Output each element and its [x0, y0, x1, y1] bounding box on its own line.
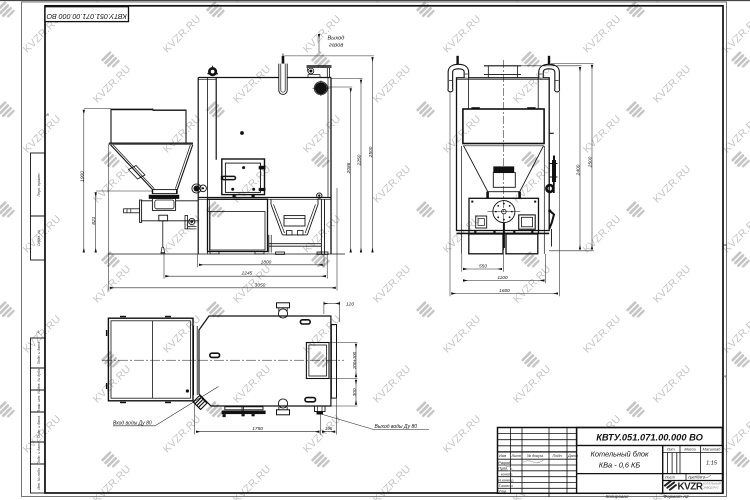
svg-text:КВа - 0,6 КБ: КВа - 0,6 КБ — [599, 461, 641, 470]
svg-text:1600: 1600 — [499, 288, 510, 294]
svg-text:Инв. № дубл.: Инв. № дубл. — [37, 368, 41, 390]
svg-text:KVZR: KVZR — [678, 481, 703, 492]
svg-text:КВТУ.051.071.00.000 ВО: КВТУ.051.071.00.000 ВО — [596, 433, 703, 443]
svg-text:ЗАВОД РУС: ЗАВОД РУС — [703, 486, 720, 490]
svg-text:контр.: контр. — [501, 473, 513, 477]
svg-text:821: 821 — [91, 216, 97, 224]
svg-text:Листов 1: Листов 1 — [687, 476, 705, 480]
svg-text:Выход воды Ду 80: Выход воды Ду 80 — [375, 424, 418, 430]
svg-text:газов: газов — [329, 43, 343, 49]
svg-text:195: 195 — [325, 426, 333, 431]
svg-text:Т.контр.: Т.контр. — [498, 484, 513, 488]
svg-text:Перв. примен.: Перв. примен. — [37, 173, 41, 197]
svg-text:А: А — [722, 374, 726, 379]
svg-text:Разраб.: Разраб. — [498, 461, 512, 465]
svg-text:1750: 1750 — [252, 426, 263, 432]
svg-text:Лист: Лист — [511, 454, 522, 458]
svg-text:2086: 2086 — [346, 162, 352, 174]
svg-text:Инв. № подл.: Инв. № подл. — [37, 467, 41, 489]
svg-text:120: 120 — [346, 301, 354, 307]
svg-text:2245: 2245 — [241, 271, 253, 277]
svg-text:Подп. и дата: Подп. и дата — [37, 342, 41, 365]
svg-text:2250: 2250 — [357, 154, 363, 166]
svg-text:Вход воды Ду 80: Вход воды Ду 80 — [113, 420, 152, 426]
svg-text:А: А — [35, 330, 39, 335]
svg-text:Подп. и дата: Подп. и дата — [37, 442, 41, 465]
svg-text:Утв.: Утв. — [498, 490, 507, 494]
svg-text:2500: 2500 — [588, 156, 594, 168]
svg-text:200±100: 200±100 — [352, 351, 357, 370]
svg-text:Масштаб: Масштаб — [703, 448, 722, 452]
svg-text:Дата: Дата — [567, 454, 578, 458]
svg-text:3050: 3050 — [255, 282, 266, 288]
svg-text:1100: 1100 — [497, 275, 508, 281]
svg-text:Лит.: Лит. — [666, 448, 676, 452]
svg-text:Подп.: Подп. — [553, 454, 563, 458]
svg-text:Изм: Изм — [499, 454, 506, 458]
svg-text:Подп. и дата: Подп. и дата — [37, 416, 41, 439]
svg-text:550: 550 — [479, 263, 487, 269]
svg-text:Пров.: Пров. — [498, 467, 508, 471]
svg-text:Взам. инв. №: Взам. инв. № — [37, 390, 41, 412]
svg-text:Формат А2: Формат А2 — [663, 494, 689, 499]
svg-text:300: 300 — [352, 388, 358, 396]
svg-text:Масса: Масса — [684, 448, 695, 452]
svg-text:Справ. №: Справ. № — [37, 230, 41, 246]
svg-text:2500: 2500 — [368, 146, 374, 158]
svg-text:1900: 1900 — [79, 171, 85, 182]
svg-text:Котельный блок: Котельный блок — [591, 450, 649, 459]
svg-text:КВТУ.051.071.00.000 ВО: КВТУ.051.071.00.000 ВО — [46, 12, 127, 20]
svg-text:Лист: Лист — [664, 476, 675, 480]
svg-text:2400: 2400 — [576, 164, 582, 176]
svg-text:№ докум.: № докум. — [527, 454, 544, 458]
svg-text:Выход: Выход — [328, 36, 345, 42]
svg-text:Копировал: Копировал — [606, 494, 629, 499]
svg-text:Н.контр.: Н.контр. — [498, 478, 514, 482]
svg-text:1800: 1800 — [261, 259, 272, 265]
svg-text:1:15: 1:15 — [706, 461, 718, 467]
